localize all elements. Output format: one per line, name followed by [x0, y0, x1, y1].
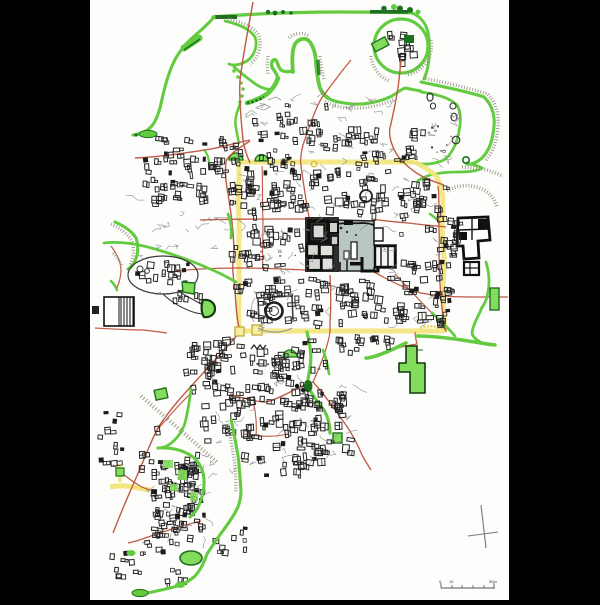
svg-text:50m: 50m [489, 579, 497, 584]
svg-text:10: 10 [449, 579, 454, 584]
